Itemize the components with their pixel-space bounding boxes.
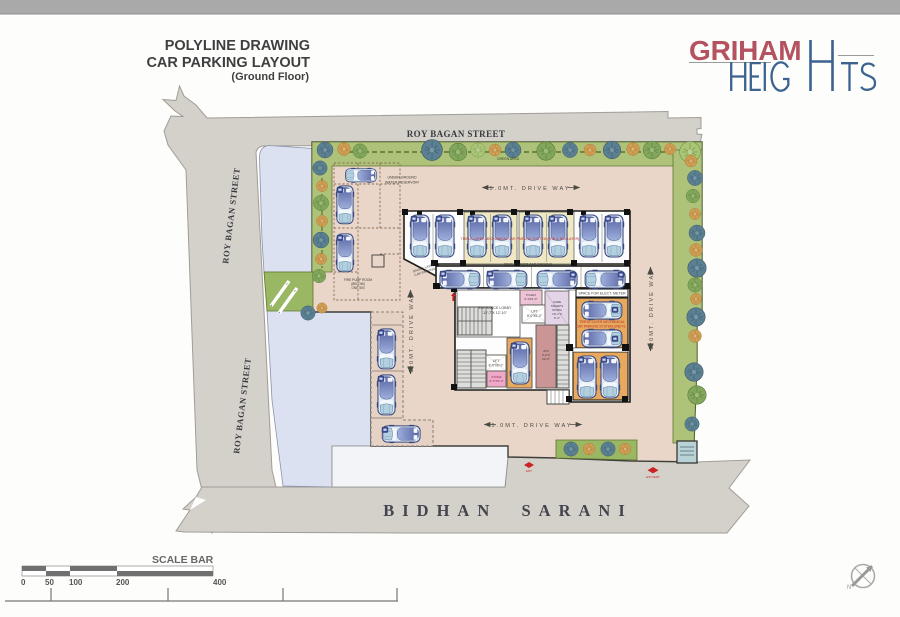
svg-text:GREEN AREA: GREEN AREA: [497, 157, 520, 161]
svg-text:SCALE BAR: SCALE BAR: [152, 554, 214, 566]
svg-text:WATER RESERVOIR: WATER RESERVOIR: [385, 181, 419, 185]
svg-text:CAR PARKING LAYOUT: CAR PARKING LAYOUT: [146, 55, 310, 71]
svg-text:LIFT: LIFT: [493, 359, 500, 363]
svg-text:GRIHAM: GRIHAM: [689, 35, 801, 66]
svg-text:SPACE FOR ELECT. METER: SPACE FOR ELECT. METER: [578, 292, 626, 296]
svg-text:ENTRANCE LOBBY: ENTRANCE LOBBY: [479, 306, 512, 310]
svg-text:SINGLE LAYER CAR PARKING: SINGLE LAYER CAR PARKING: [504, 263, 553, 267]
svg-text:6'-4": 6'-4": [554, 316, 560, 320]
svg-text:TRIPLE LAYER MECHANICAL: TRIPLE LAYER MECHANICAL: [579, 320, 625, 324]
svg-text:EXIT/ENT: EXIT/ENT: [646, 475, 660, 479]
svg-text:200: 200: [116, 578, 130, 587]
svg-text:5.0MT. DRIVE WAY: 5.0MT. DRIVE WAY: [409, 291, 415, 372]
svg-text:ENT: ENT: [526, 469, 532, 473]
svg-text:5.0MT. DRIVE WAY: 5.0MT. DRIVE WAY: [491, 423, 572, 429]
svg-text:UNDER GROUND: UNDER GROUND: [388, 176, 417, 180]
svg-text:0: 0: [21, 578, 26, 587]
svg-text:8'-0"X5'-0": 8'-0"X5'-0": [490, 379, 504, 383]
svg-text:8'-0"X6'-0": 8'-0"X6'-0": [489, 364, 504, 368]
svg-text:ONE 500: ONE 500: [351, 286, 364, 290]
svg-text:CAR PARKING SYSTEM (2ND FL.): CAR PARKING SYSTEM (2ND FL.): [576, 325, 628, 329]
svg-text:400: 400: [213, 578, 227, 587]
svg-text:POLYLINE DRAWING: POLYLINE DRAWING: [165, 38, 310, 54]
svg-text:50: 50: [45, 578, 54, 587]
svg-text:N: N: [847, 585, 851, 591]
svg-text:6'-0X4'-0": 6'-0X4'-0": [525, 297, 538, 301]
svg-text:(Ground Floor): (Ground Floor): [231, 71, 309, 83]
svg-text:5.0MT. DRIVE WAY: 5.0MT. DRIVE WAY: [649, 268, 655, 349]
svg-text:12'-7"X 12'-10": 12'-7"X 12'-10": [483, 311, 507, 315]
svg-text:5.0MT. DRIVE WAY: 5.0MT. DRIVE WAY: [489, 186, 570, 192]
svg-text:LIFT: LIFT: [531, 310, 538, 314]
svg-text:22'-0": 22'-0": [542, 357, 550, 361]
svg-text:ROY BAGAN STREET: ROY BAGAN STREET: [407, 129, 506, 139]
svg-text:100: 100: [69, 578, 83, 587]
svg-text:BIDHAN SARANI: BIDHAN SARANI: [383, 501, 633, 520]
svg-text:8'-0"X6'-0": 8'-0"X6'-0": [527, 314, 542, 318]
svg-text:TRIPLE LAYER MECHANICAL CAR PA: TRIPLE LAYER MECHANICAL CAR PARKING SYST…: [461, 237, 579, 241]
